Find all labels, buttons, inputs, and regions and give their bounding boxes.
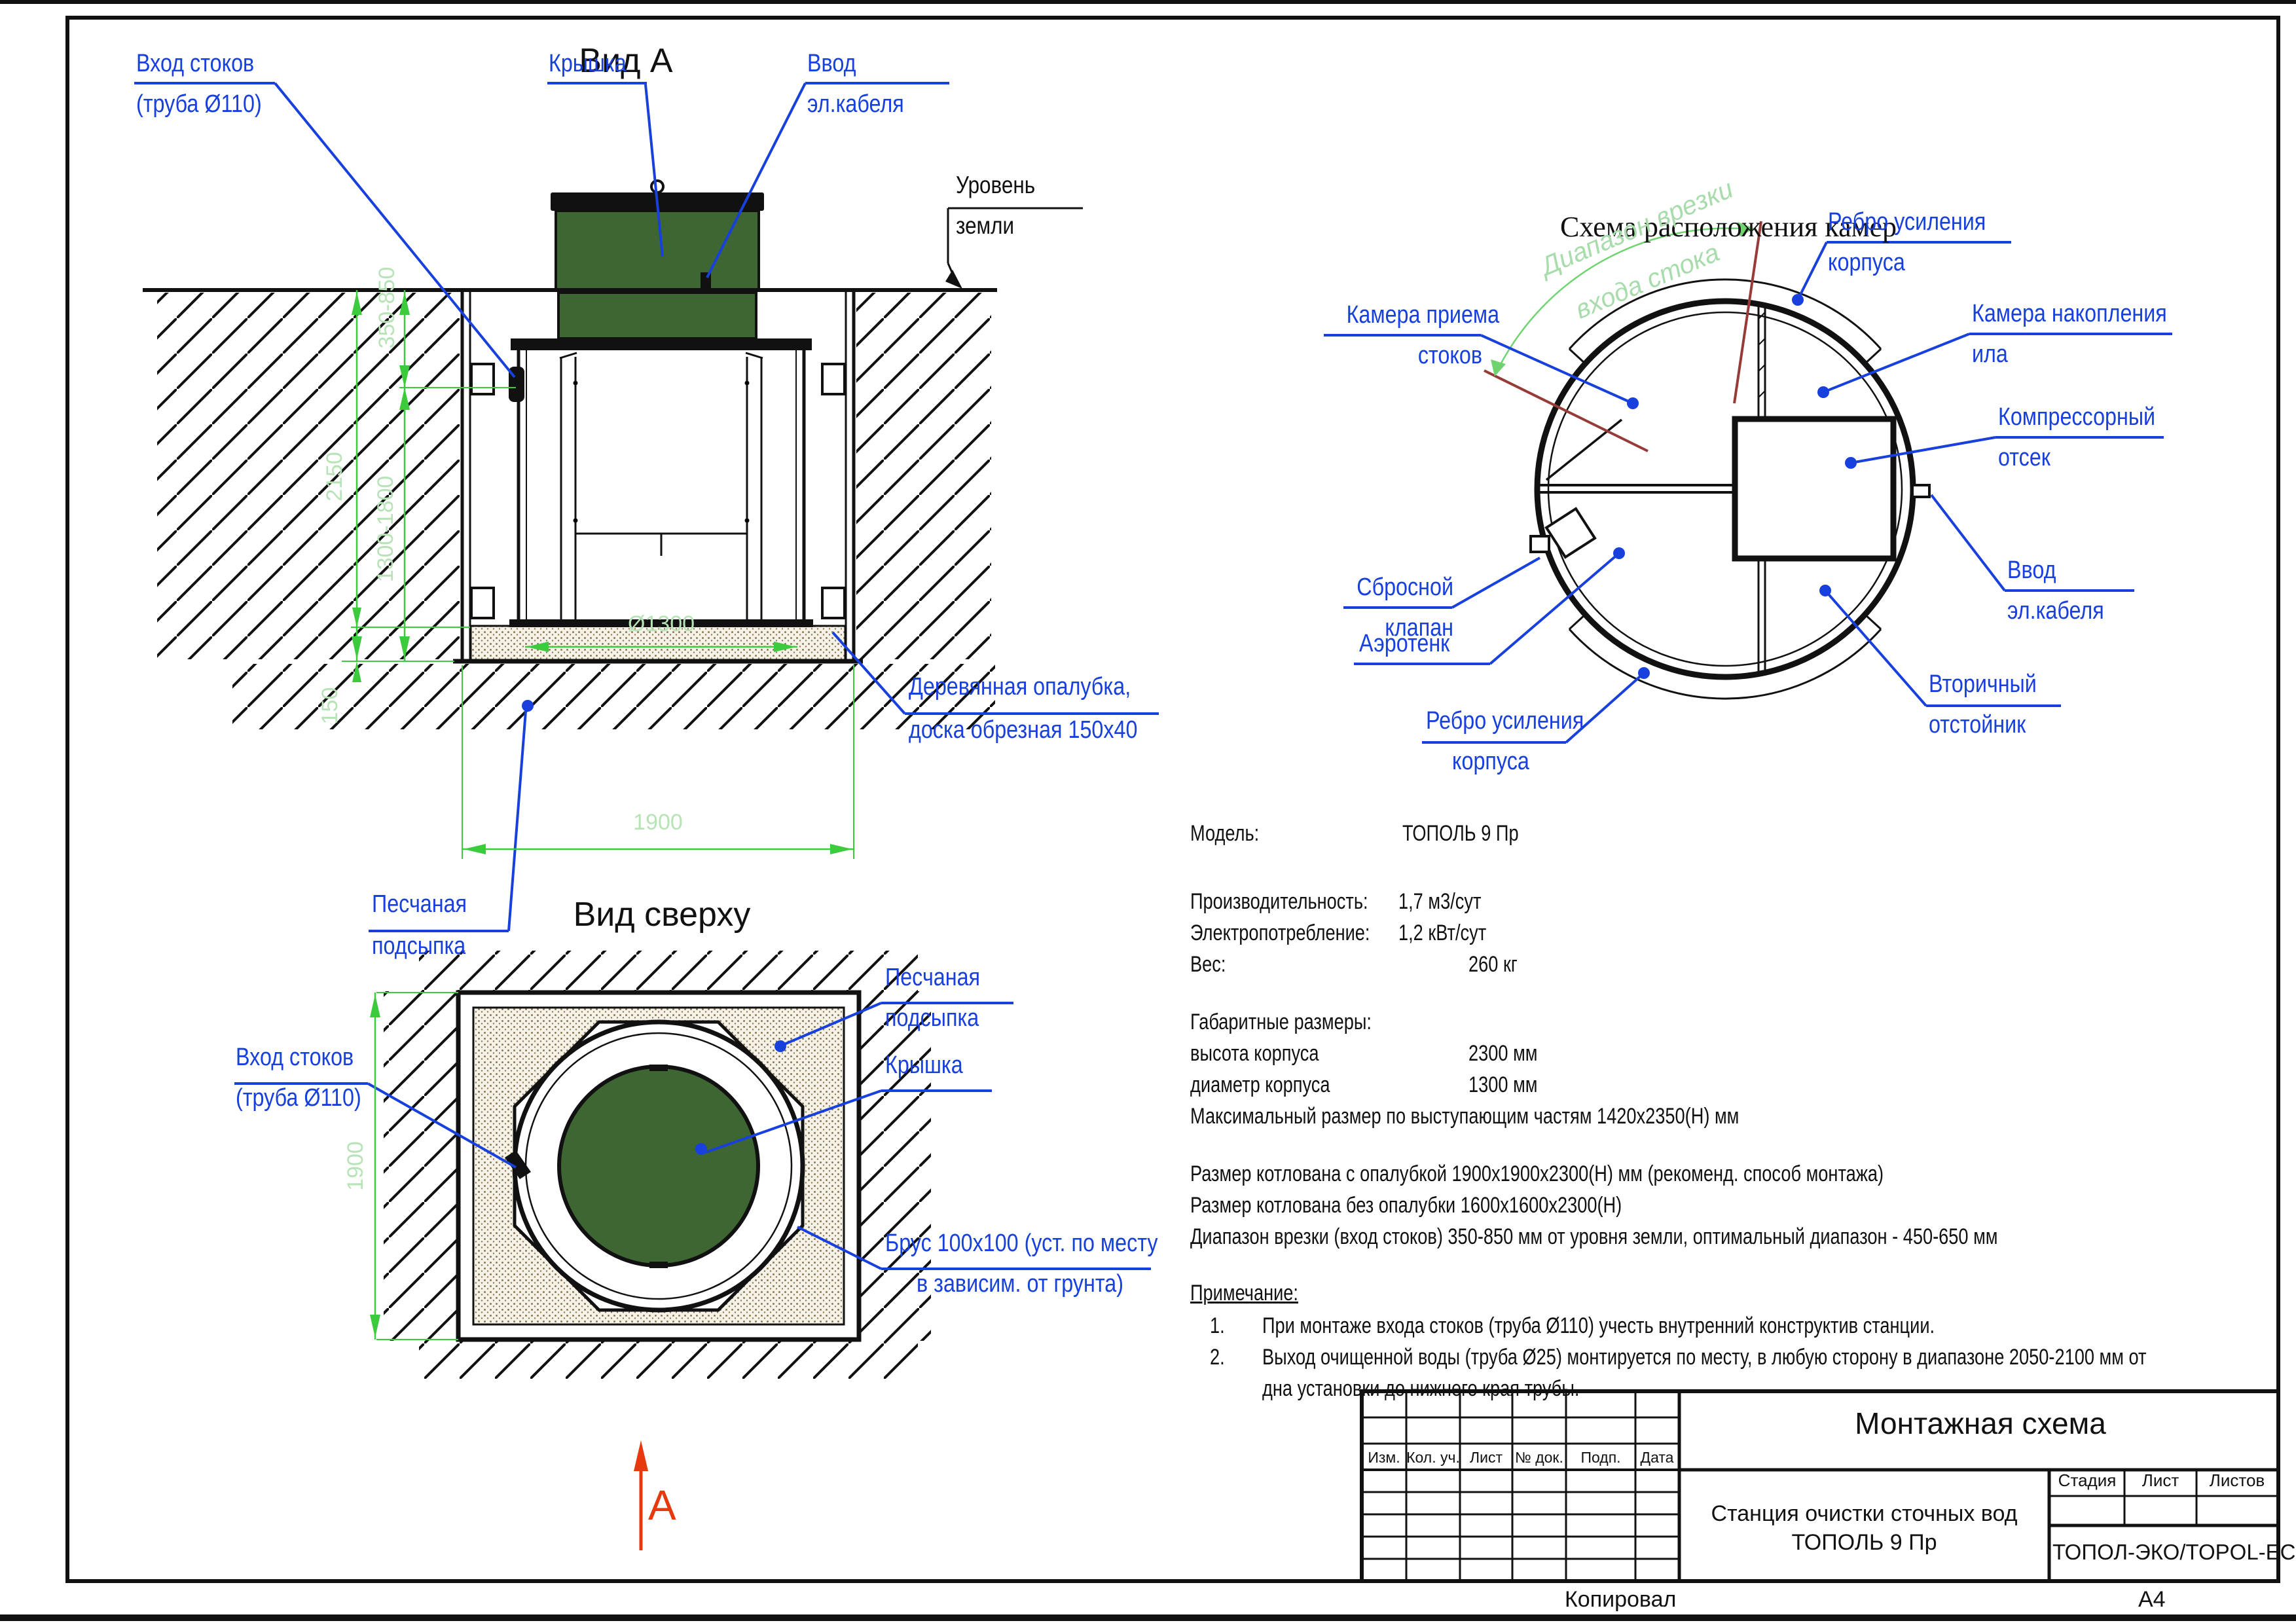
dim-diameter: Ø1300 [628,613,695,636]
label-intake: Камера приема [1347,302,1482,329]
label-clarifier2: отстойник [1929,712,2026,739]
spec-diameter-label: диаметр корпуса [1190,1074,1330,1097]
lid-top [559,1067,758,1266]
dim-tv-width: 1900 [344,1141,368,1191]
label-tv-inlet2: (труба Ø110) [236,1085,361,1112]
label-compressor2: отсек [1998,445,2050,471]
dim-width: 1900 [633,811,683,835]
dim-depth-range: 350-850 [376,267,399,349]
label-clarifier: Вторичный [1929,672,2037,698]
earth-hatch-right [856,293,991,659]
note2-num: 2. [1210,1346,1225,1370]
spec-max-size: Максимальный размер по выступающим частя… [1190,1105,1739,1129]
label-aerotank: Аэротенк [1359,631,1449,657]
drawing-sheet: Вид А Вход стоков (труба Ø110) Крышка Вв… [0,0,2296,1623]
label-ch-cable: Ввод [2007,558,2056,584]
spec-height-label: высота корпуса [1190,1042,1319,1066]
note2-text: Выход очищенной воды (труба Ø25) монтиру… [1262,1346,2146,1370]
section-arrow [634,1440,648,1550]
label-valve: Сбросной [1353,575,1453,601]
dim-bedding: 150 [319,687,342,725]
spec-pit-formwork: Размер котлована с опалубкой 1900х1900х2… [1190,1163,1884,1186]
section-mark-a: А [648,1484,676,1527]
label-rib-top2: корпуса [1828,250,1905,276]
copied-label: Копировал [1565,1588,1676,1612]
stamp-sheets: Листов [2197,1472,2277,1489]
label-ground-level: Уровень [956,173,1035,198]
stamp-col-dok: № док. [1510,1450,1569,1465]
spec-size-header: Габаритные размеры: [1190,1011,1372,1034]
stamp-title: Монтажная схема [1683,1408,2278,1439]
top-view-linework [384,951,931,1379]
label-tv-cover: Крышка [885,1053,963,1079]
spec-power-value: 1,2 кВт/сут [1398,922,1486,945]
dim-body-range: 1300-1800 [374,476,398,583]
spec-diameter-value: 1300 мм [1468,1074,1537,1097]
spec-model-value: ТОПОЛЬ 9 Пр [1402,822,1519,846]
label-cable2: эл.кабеля [807,92,904,118]
label-cable: Ввод [807,51,856,77]
stamp-product: Станция очистки сточных вод [1679,1503,2049,1526]
stamp-col-list: Лист [1457,1450,1516,1465]
spec-weight-label: Вес: [1190,953,1226,977]
label-cover: Крышка [549,51,627,77]
spec-perf-value: 1,7 м3/сут [1398,890,1481,914]
label-compressor: Компрессорный [1998,405,2155,431]
label-formwork: Деревянная опалубка, [909,674,1131,701]
earth-hatch-left [157,293,460,659]
stamp-product-model: ТОПОЛЬ 9 Пр [1679,1531,2049,1555]
label-inlet: Вход стоков [136,51,254,77]
stamp-col-podp: Подп. [1571,1450,1630,1465]
spec-power-label: Электропотребление: [1190,922,1370,945]
spec-inlet-range: Диапазон врезки (вход стоков) 350-850 мм… [1190,1226,1998,1249]
spec-pit-no-formwork: Размер котлована без опалубки 1600х1600х… [1190,1194,1622,1218]
label-rib-bottom: Ребро усиления [1426,708,1584,735]
label-sludge2: ила [1972,342,2008,368]
spec-height-value: 2300 мм [1468,1042,1537,1066]
label-tv-beam: Брус 100х100 (уст. по месту [885,1231,1158,1257]
label-tv-sand: Песчаная [885,965,980,991]
cable-entry-stub [1912,485,1929,497]
label-ground-level2: земли [956,213,1014,239]
tank-body [509,338,813,627]
tank-internals [560,353,763,621]
label-formwork2: доска обрезная 150х40 [909,718,1137,744]
notes-header: Примечание: [1190,1282,1298,1305]
label-intake2: стоков [1347,343,1482,369]
label-tv-inlet: Вход стоков [236,1045,354,1071]
format-label: А4 [2138,1588,2166,1612]
note2-text2: дна установки до нижнего края трубы. [1262,1377,1579,1401]
label-tv-beam2: в зависим. от грунта) [917,1271,1123,1298]
label-sludge: Камера накопления [1972,301,2167,327]
spec-perf-label: Производительность: [1190,890,1368,914]
label-inlet-pipe: (труба Ø110) [136,92,262,118]
top-view-title: Вид сверху [554,897,770,933]
spec-weight-value: 260 кг [1468,953,1518,977]
label-sand2: подсыпка [372,934,465,960]
earth-hatch-bottom [232,664,995,729]
spec-model-label: Модель: [1190,822,1259,846]
note1-num: 1. [1210,1315,1225,1338]
note1-text: При монтаже входа стоков (труба Ø110) уч… [1262,1315,1935,1338]
stamp-col-koluch: Кол. уч. [1404,1450,1463,1465]
stamp-sheet: Лист [2125,1472,2196,1489]
dim-total-depth: 2150 [323,452,347,501]
stamp-col-data: Дата [1628,1450,1686,1465]
label-rib-bottom2: корпуса [1452,749,1529,775]
compressor-box [1735,419,1893,558]
stamp-stage: Стадия [2050,1472,2124,1489]
label-rib-top: Ребро усиления [1828,210,1986,236]
label-sand: Песчаная [372,892,467,918]
label-tv-sand2: подсыпка [885,1006,979,1032]
label-ch-cable2: эл.кабеля [2007,598,2104,625]
stamp-company: ТОПОЛ-ЭКО/TOPOL-ECO [2052,1541,2276,1564]
linework [0,0,2296,1623]
